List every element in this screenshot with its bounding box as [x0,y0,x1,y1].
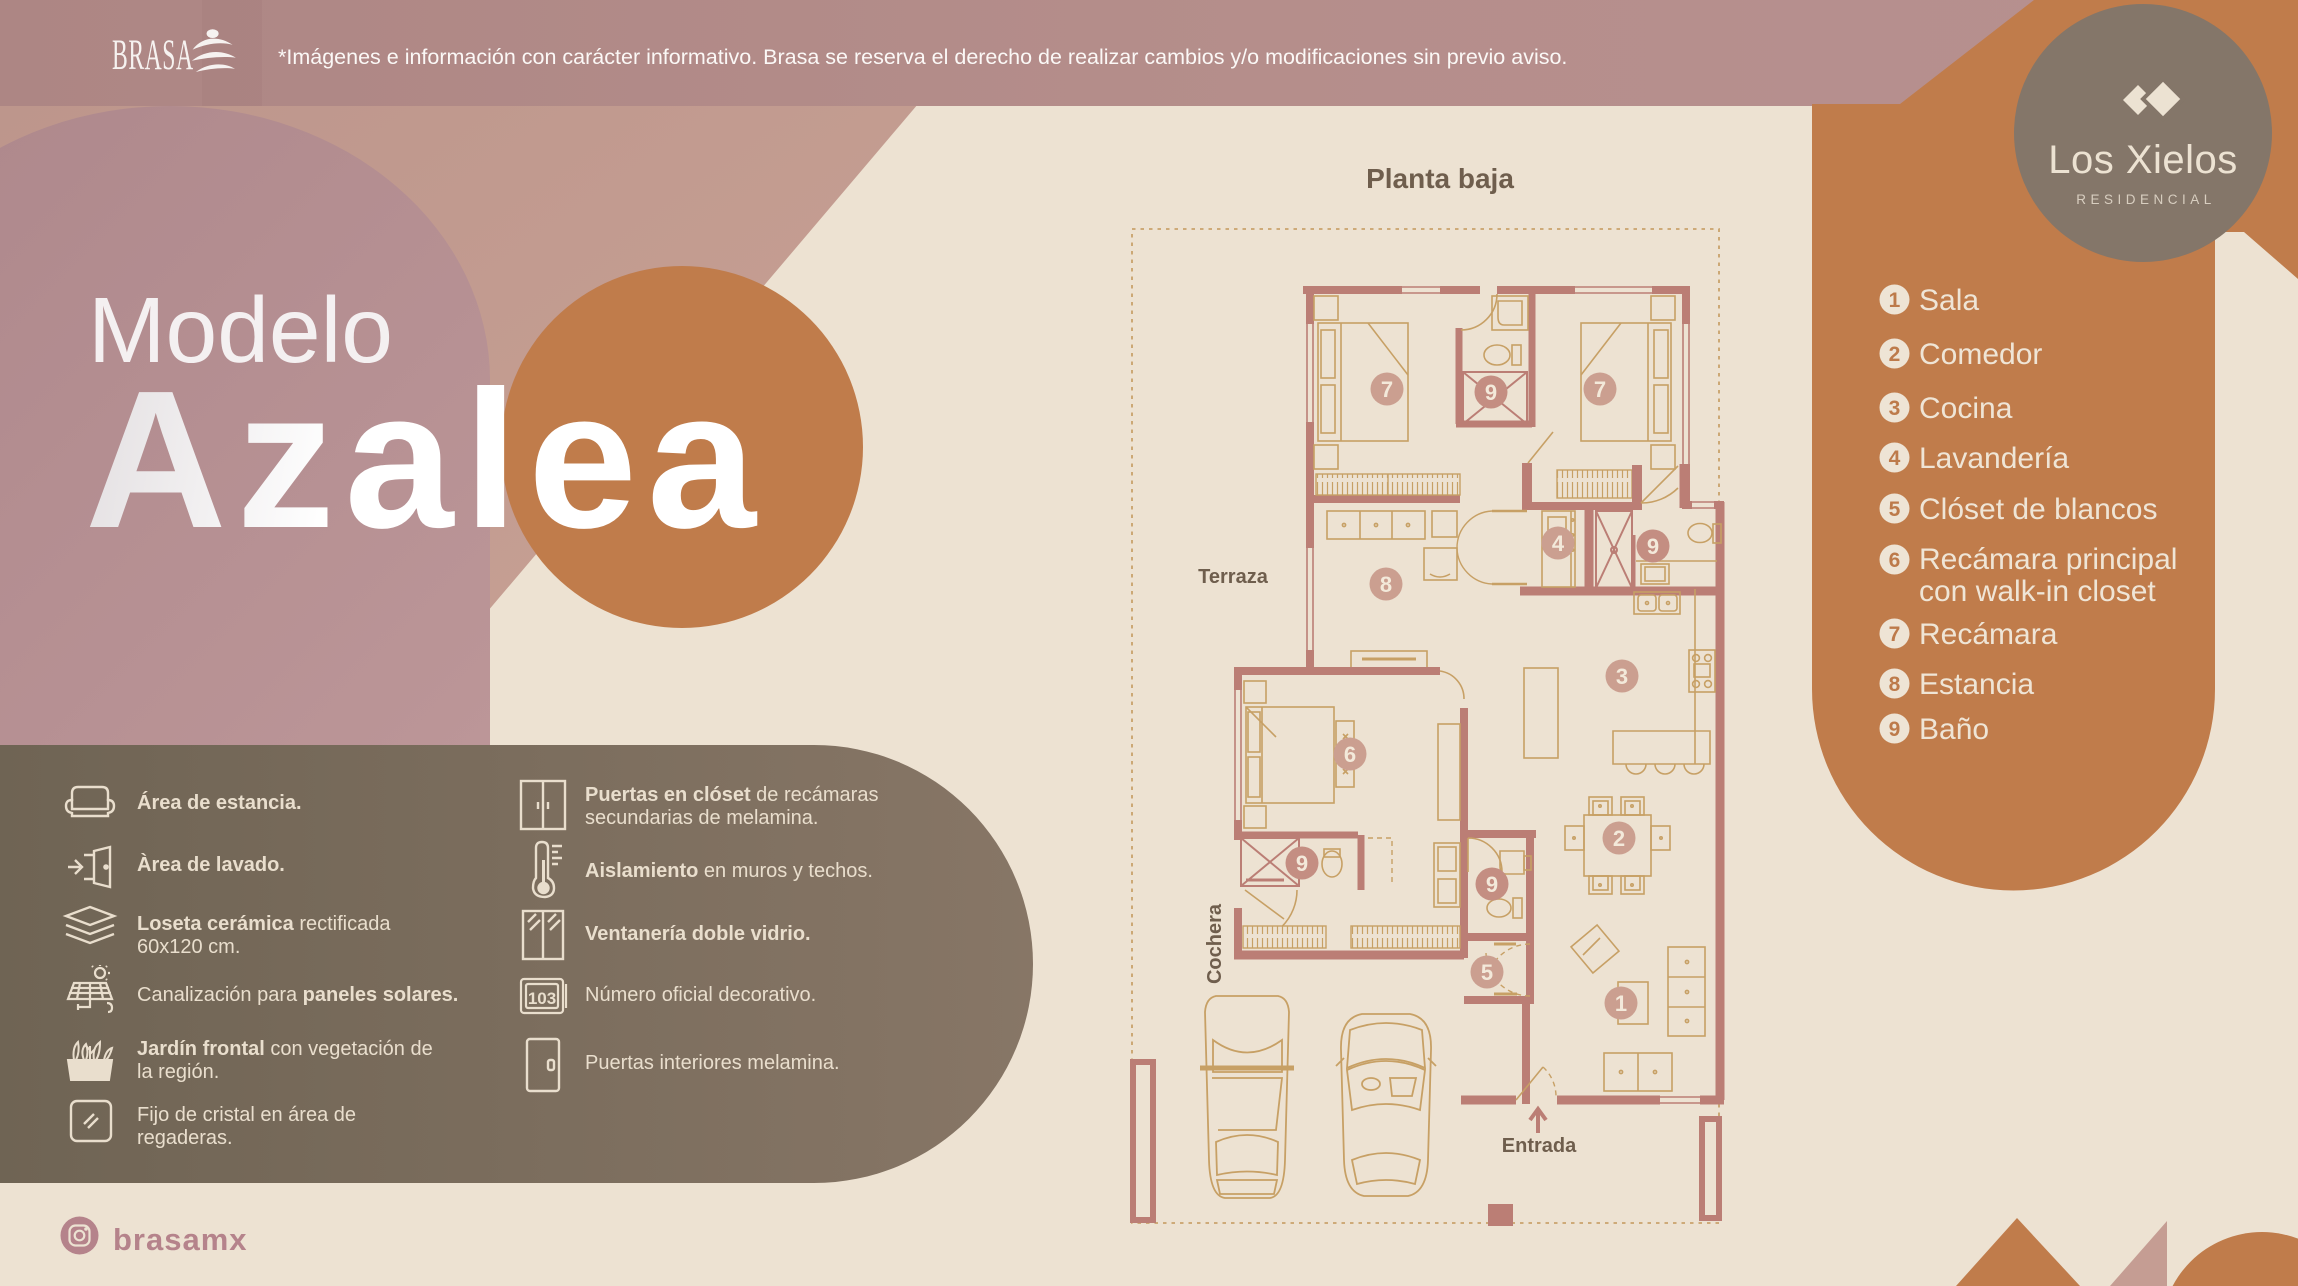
svg-text:Entrada: Entrada [1502,1135,1577,1157]
svg-text:6: 6 [1344,742,1356,767]
svg-text:103: 103 [528,989,556,1008]
svg-text:9: 9 [1486,872,1498,897]
svg-text:8: 8 [1889,673,1901,696]
svg-text:6: 6 [1889,549,1901,572]
svg-text:3: 3 [1616,664,1628,689]
svg-text:7: 7 [1889,623,1901,646]
svg-text:7: 7 [1381,377,1393,402]
svg-text:2: 2 [1613,826,1625,851]
svg-text:7: 7 [1594,377,1606,402]
svg-text:1: 1 [1615,991,1627,1016]
svg-text:9: 9 [1889,718,1901,741]
svg-text:9: 9 [1647,534,1659,559]
svg-text:Cochera: Cochera [1204,903,1226,984]
svg-text:9: 9 [1296,851,1308,876]
svg-text:5: 5 [1889,498,1901,521]
svg-text:3: 3 [1889,397,1901,420]
svg-text:8: 8 [1380,572,1392,597]
svg-text:2: 2 [1889,343,1901,366]
svg-text:Terraza: Terraza [1198,566,1269,588]
svg-text:1: 1 [1889,289,1901,312]
svg-text:9: 9 [1485,380,1497,405]
svg-text:5: 5 [1481,960,1493,985]
svg-text:4: 4 [1889,447,1901,470]
svg-text:4: 4 [1552,531,1565,556]
